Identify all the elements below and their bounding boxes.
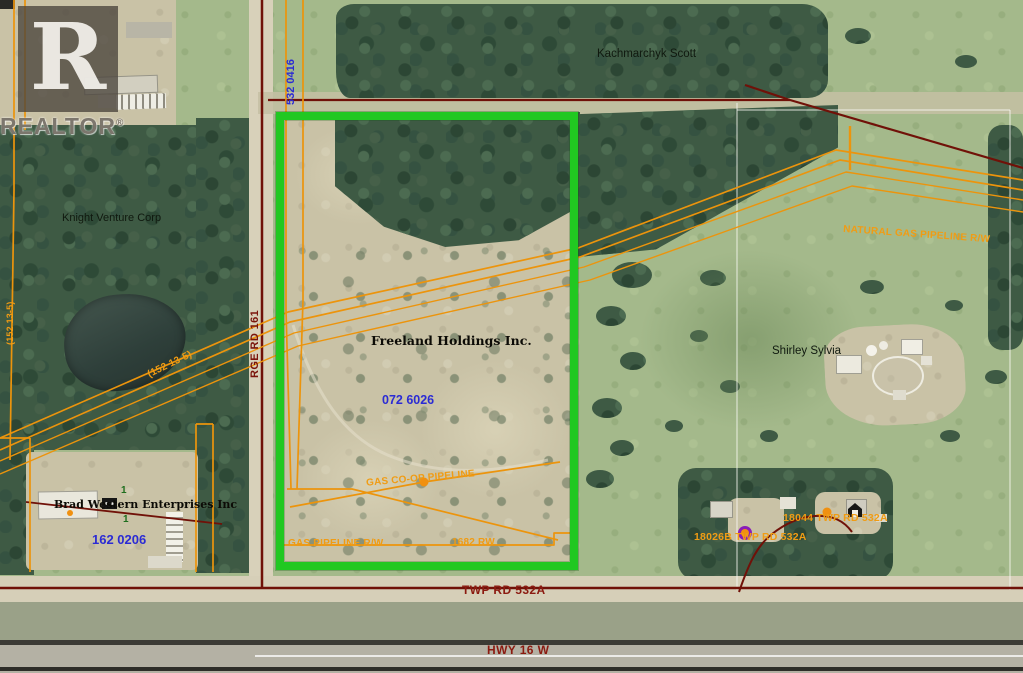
realtor-logo-r-icon: R [30,11,106,103]
owner-label-kachmarchyk: Kachmarchyk Scott [597,49,696,61]
owner-label-brad: Brad Western Enterprises Inc [54,499,237,510]
parcel-number-072: 072 6026 [382,394,434,407]
parcel-number-532: 532 0416 [286,50,297,105]
road-label-rge-rd-161: RGE RD 161 [250,308,261,378]
road-label-twp-rd-532a: TWP RD 532A [462,584,546,596]
address-label-18044: 18044 TWP RD 532A [783,513,888,524]
realtor-wordmark: REALTOR® [0,113,124,140]
survey-marker-1a: 1 [121,486,127,496]
road-label-hwy-16-w: HWY 16 W [487,644,549,656]
owner-label-shirley: Shirley Sylvia [772,346,841,358]
realtor-brand-text: REALTOR [0,113,116,139]
realtor-logo-block: R [18,6,118,112]
owner-label-knight: Knight Venture Corp [62,213,161,224]
address-label-18026b: 18026B TWP RD 532A [694,532,807,543]
pipeline-label-1682: 1682 RW [452,538,495,548]
pipeline-label-gas-rw: GAS PIPELINE R/W [288,539,383,549]
realtor-watermark: R REALTOR® [0,0,150,145]
pipeline-label-152-left: (152 13-5) [6,285,15,345]
parcel-number-162: 162 0206 [92,533,146,546]
owner-label-freeland: Freeland Holdings Inc. [371,335,532,348]
aerial-map: Kachmarchyk Scott Knight Venture Corp Fr… [0,0,1023,673]
survey-marker-1b: 1 [123,515,129,525]
registered-symbol: ® [116,117,124,128]
